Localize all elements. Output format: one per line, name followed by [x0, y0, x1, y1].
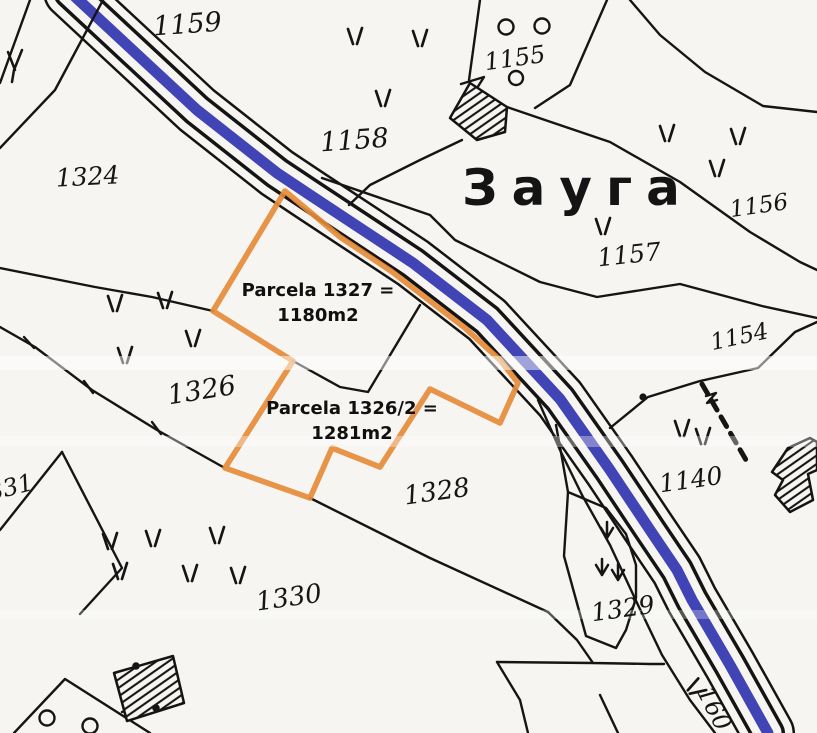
annotation-parcela-1326-2-line1: Parcela 1326/2 =: [266, 398, 438, 419]
parcel-label-1159: 1159: [152, 7, 223, 43]
annotation-parcela-1326-2-line2: 1281m2: [311, 423, 392, 444]
annotation-parcela-1327-line1: Parcela 1327 =: [242, 280, 395, 301]
survey-dot: [641, 395, 646, 400]
cadastral-map: 1159 1158 1155 1156 1157 1324 1154 1326 …: [0, 0, 817, 733]
boundary-bottom-horizontal: [497, 662, 593, 663]
parcel-label-1158: 1158: [319, 123, 390, 159]
scan-streak: [0, 610, 817, 619]
annotation-parcela-1327-line2: 1180m2: [277, 305, 358, 326]
cadastral-map-canvas: 1159 1158 1155 1156 1157 1324 1154 1326 …: [0, 0, 817, 733]
scan-streak: [0, 436, 817, 447]
scan-streak: [0, 356, 817, 370]
parcel-label-1324: 1324: [55, 160, 120, 192]
region-label: Зауга: [462, 159, 694, 217]
survey-dot: [153, 705, 158, 710]
survey-dot: [133, 663, 138, 668]
